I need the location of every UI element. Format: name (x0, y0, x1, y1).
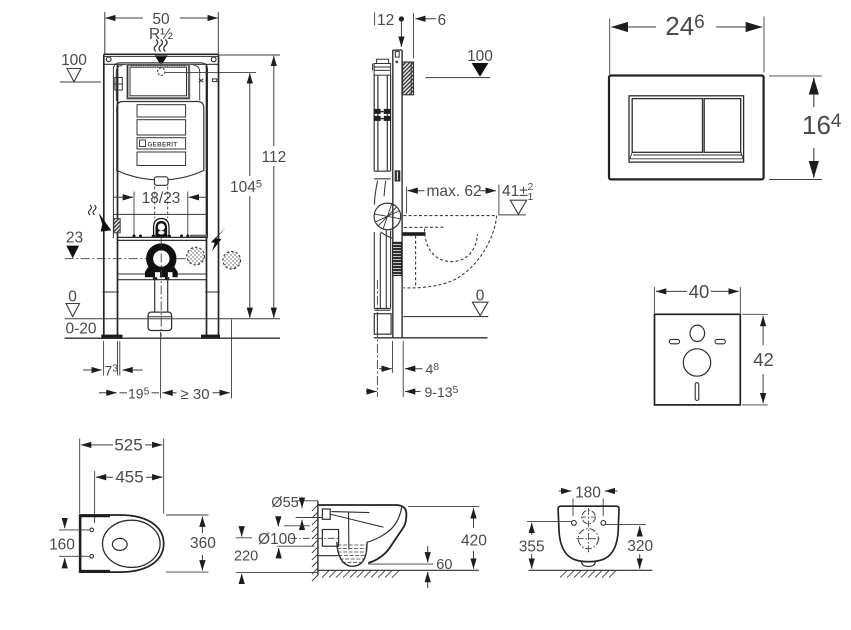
svg-text:100: 100 (61, 52, 87, 69)
svg-text:525: 525 (114, 436, 142, 455)
svg-text:23: 23 (66, 230, 83, 247)
svg-text:320: 320 (627, 538, 653, 555)
svg-text:455: 455 (115, 468, 143, 487)
svg-text:6: 6 (438, 12, 447, 29)
svg-text:360: 360 (190, 535, 216, 552)
svg-text:41±: 41± (502, 183, 528, 200)
svg-text:112: 112 (262, 149, 287, 166)
svg-text:355: 355 (519, 539, 545, 556)
svg-text:18/23: 18/23 (142, 190, 181, 207)
svg-text:Ø55: Ø55 (271, 495, 298, 511)
svg-text:160: 160 (49, 536, 75, 553)
svg-text:420: 420 (461, 533, 487, 550)
svg-text:220: 220 (234, 549, 258, 565)
svg-text:100: 100 (467, 48, 493, 65)
svg-text:180: 180 (575, 485, 601, 502)
svg-text:40: 40 (689, 281, 710, 302)
svg-text:0-20: 0-20 (66, 321, 97, 338)
svg-text:42: 42 (753, 349, 774, 370)
svg-text:GEBERIT: GEBERIT (148, 141, 178, 148)
svg-text:1: 1 (528, 191, 534, 203)
svg-text:≥ 30: ≥ 30 (181, 386, 210, 403)
svg-text:max. 62: max. 62 (427, 183, 482, 200)
svg-text:60: 60 (436, 557, 452, 573)
svg-text:Ø100: Ø100 (258, 531, 296, 548)
svg-text:12: 12 (377, 12, 394, 29)
